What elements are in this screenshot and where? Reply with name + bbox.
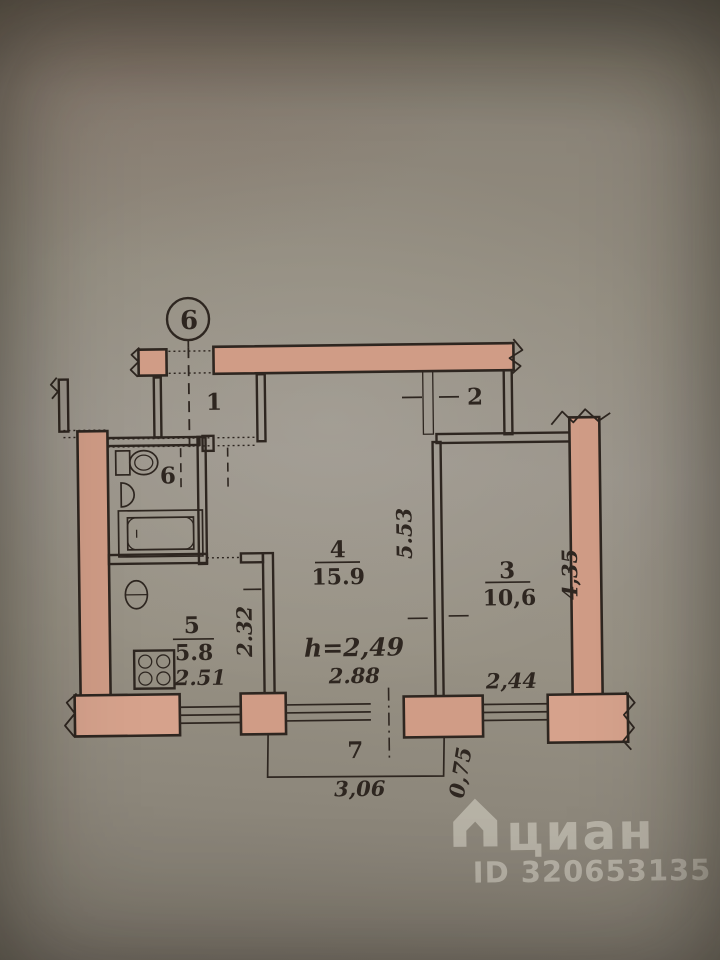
bathtub-inner — [127, 517, 193, 550]
room4-number: 4 — [330, 536, 346, 563]
toilet-tank — [116, 451, 130, 475]
room4-room3-partition — [433, 442, 444, 699]
kitchen-width-dim: 2.51 — [174, 665, 226, 691]
kitchen-top-wall-jamb — [241, 553, 263, 562]
bottom-wall-pier-1 — [241, 693, 286, 735]
room4-width-dim: 2.88 — [328, 663, 381, 689]
left-stub-break — [51, 378, 58, 399]
room3-fraction-line — [485, 582, 530, 583]
top-wall — [213, 343, 513, 374]
toilet-bowl — [130, 450, 158, 474]
bottom-wall-pier-2 — [404, 696, 483, 738]
balcony-number: 7 — [347, 737, 363, 764]
section-mark-number: 6 — [180, 306, 198, 336]
room3-window-line-3 — [483, 720, 548, 721]
stove-burner-2 — [157, 655, 170, 668]
washbasin — [121, 483, 134, 507]
stove-burner-3 — [139, 672, 152, 685]
ceiling-height-dim: h=2,49 — [304, 632, 404, 662]
bottom-wall-left-block — [75, 694, 180, 736]
room3-width-dim: 2,44 — [485, 668, 537, 694]
cian-logo-icon — [453, 798, 498, 847]
entry-threshold-top — [168, 351, 211, 352]
room3-area: 10,6 — [483, 585, 537, 612]
stove-burner-1 — [139, 655, 152, 668]
room4-fraction-line — [315, 562, 360, 563]
kitchen-window-line-1 — [180, 706, 241, 707]
kitchen-number: 5 — [184, 612, 200, 639]
stove-burner-4 — [157, 672, 170, 685]
room4-depth-dim: 5.53 — [391, 508, 417, 559]
watermark: циан ID 320653135 — [453, 796, 712, 890]
room3-window-line-2 — [483, 712, 548, 713]
entry-door-axis — [188, 347, 189, 447]
wardrobe-dashed-right — [228, 448, 229, 489]
balcony-depth-dim: 0,75 — [444, 745, 477, 800]
balcony-width-dim: 3,06 — [334, 776, 386, 802]
bottom-wall-corner-block — [548, 694, 629, 743]
toilet-bowl-inner — [135, 455, 153, 470]
kitchen-area: 5.8 — [175, 640, 214, 666]
balcony-door-axis — [389, 688, 390, 758]
wardrobe-dashed-left — [181, 448, 182, 489]
hall-right-wall — [257, 374, 266, 441]
left-outer-stub — [59, 380, 69, 432]
room3-number: 3 — [499, 557, 515, 584]
floor-plan-photo: 6 1 2 6 5 5. — [0, 0, 720, 960]
hall-left-wall — [154, 377, 162, 437]
kitchen-window-line-2 — [180, 714, 241, 715]
closet-number: 2 — [467, 383, 483, 410]
room4-area: 15.9 — [311, 564, 365, 591]
room4-window-line-3 — [286, 720, 371, 721]
bathroom-top-wall — [107, 437, 199, 446]
room4-window-line-1 — [286, 704, 371, 705]
floor-plan-drawing: 6 1 2 6 5 5. — [0, 0, 720, 960]
room4-window-line-2 — [286, 712, 371, 713]
hall-number: 1 — [206, 389, 222, 416]
kitchen-window-line-3 — [180, 722, 241, 723]
left-outer-wall — [77, 431, 110, 703]
room3-window-line-1 — [483, 704, 548, 705]
kitchen-depth-dim: 2.32 — [232, 606, 258, 658]
kitchen-right-wall — [263, 553, 275, 701]
entry-pier — [138, 349, 166, 375]
entry-threshold-bottom — [169, 373, 212, 374]
watermark-id: ID 320653135 — [473, 853, 712, 890]
room3-depth-dim: 4,35 — [557, 549, 583, 600]
bathroom-number: 6 — [160, 462, 176, 489]
closet-door-jamb — [423, 371, 434, 434]
closet-right-wall — [504, 370, 513, 434]
